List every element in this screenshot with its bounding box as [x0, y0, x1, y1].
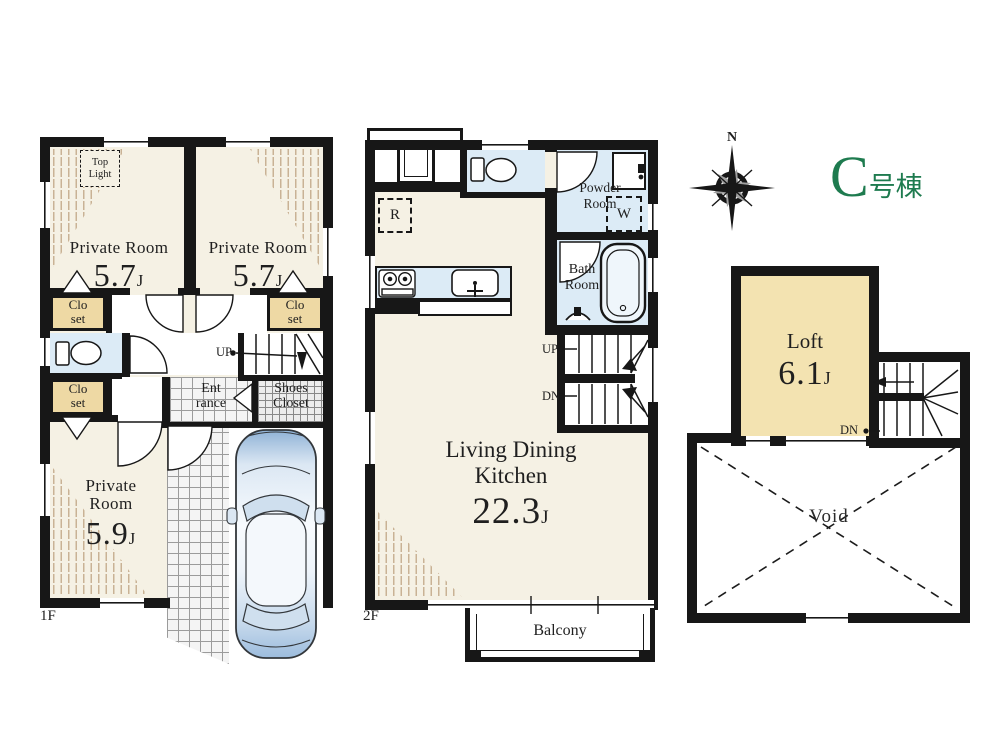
wall: [460, 140, 467, 198]
window: [40, 464, 50, 516]
window: [365, 256, 375, 308]
approach-tiles: [167, 424, 229, 664]
closet-label: Closet: [269, 298, 321, 325]
window: [786, 436, 866, 446]
building-label: C号棟: [830, 148, 923, 206]
entrance-label: Entrance: [172, 381, 250, 411]
ldk-name: Living Dining Kitchen: [391, 437, 631, 490]
window: [226, 137, 270, 147]
wall: [869, 438, 970, 448]
wall: [557, 232, 658, 240]
room-size-value: 6.1: [778, 355, 824, 392]
wall: [162, 377, 170, 428]
window: [648, 258, 658, 292]
f1-hall: [112, 377, 162, 422]
wall: [252, 377, 258, 422]
room-name: Private Room: [58, 477, 164, 514]
room-name: Private Room: [58, 239, 180, 257]
window: [648, 348, 658, 402]
window: [746, 436, 770, 446]
top-light-label: Top: [89, 157, 112, 168]
wall: [184, 147, 196, 293]
wall: [323, 137, 333, 608]
up-label: UP: [532, 343, 558, 357]
refrigerator-label: R: [390, 207, 400, 224]
window: [104, 137, 148, 147]
f1-hall: [200, 295, 267, 333]
room-size: 5.7J: [196, 258, 320, 293]
top-light-label: Light: [89, 169, 112, 180]
wall: [122, 333, 130, 377]
wall: [162, 422, 333, 428]
floorplan-canvas: Top Light R W: [0, 0, 1000, 749]
wall: [106, 295, 112, 333]
wall: [40, 137, 333, 147]
window: [648, 204, 658, 230]
f1-stairs-floor: [244, 333, 323, 375]
wall: [545, 140, 557, 152]
room-size-value: 5.7: [233, 257, 276, 293]
floor-label-2f: 2F: [363, 608, 397, 624]
top-light-box: Top Light: [80, 150, 120, 187]
shoes-closet-label: ShoesCloset: [259, 381, 323, 411]
wall: [460, 192, 555, 198]
room-size-unit: J: [137, 271, 144, 290]
wall: [545, 188, 557, 333]
f1-hall: [112, 295, 178, 333]
loft-name: Loft: [755, 330, 855, 353]
bath-room-label: BathRoom: [556, 262, 608, 294]
window: [482, 140, 528, 150]
room-size-value: 22.3: [472, 491, 541, 532]
room-size-unit: J: [276, 271, 283, 290]
dn-label: DN: [830, 424, 858, 438]
powder-room-label: PowderRoom: [558, 180, 642, 211]
wall: [960, 352, 970, 448]
ldk-size: 22.3J: [391, 492, 631, 532]
room-size-value: 5.7: [94, 257, 137, 293]
building-letter: C: [830, 148, 869, 206]
f1-toilet-room: [50, 333, 122, 373]
car-icon: [227, 430, 325, 658]
building-suffix: 号棟: [869, 174, 923, 201]
floor-label-1f: 1F: [40, 608, 74, 624]
balcony-post: [465, 650, 481, 662]
balcony-post: [639, 650, 655, 662]
closet-label: Closet: [52, 382, 104, 409]
void-room: [687, 433, 970, 623]
closet-label: Closet: [52, 298, 104, 325]
window: [100, 598, 144, 608]
compass-north-label: N: [720, 130, 744, 145]
room-size: 5.7J: [58, 258, 180, 293]
up-label: UP: [204, 346, 232, 360]
wall: [106, 379, 112, 415]
window: [40, 338, 50, 366]
window: [365, 412, 375, 464]
wall: [869, 352, 970, 362]
room-size-value: 5.9: [86, 515, 129, 551]
wall: [557, 425, 658, 433]
wall: [557, 333, 565, 433]
window: [806, 613, 848, 623]
room-size-unit: J: [129, 529, 136, 548]
window: [40, 182, 50, 228]
loft-stairs-floor: [879, 362, 960, 438]
balcony-label: Balcony: [500, 622, 620, 639]
wall: [50, 415, 118, 422]
loft-size: 6.1J: [750, 356, 860, 393]
dn-label: DN: [534, 390, 560, 404]
void-label: Void: [798, 507, 860, 528]
wall: [238, 333, 244, 377]
room-name: Private Room: [196, 239, 320, 257]
compass-icon: [689, 145, 775, 231]
window: [323, 228, 333, 276]
room-size: 5.9J: [58, 516, 164, 551]
room-size-unit: J: [824, 368, 832, 388]
room-size-unit: J: [541, 507, 550, 528]
refrigerator-box: R: [378, 198, 412, 233]
